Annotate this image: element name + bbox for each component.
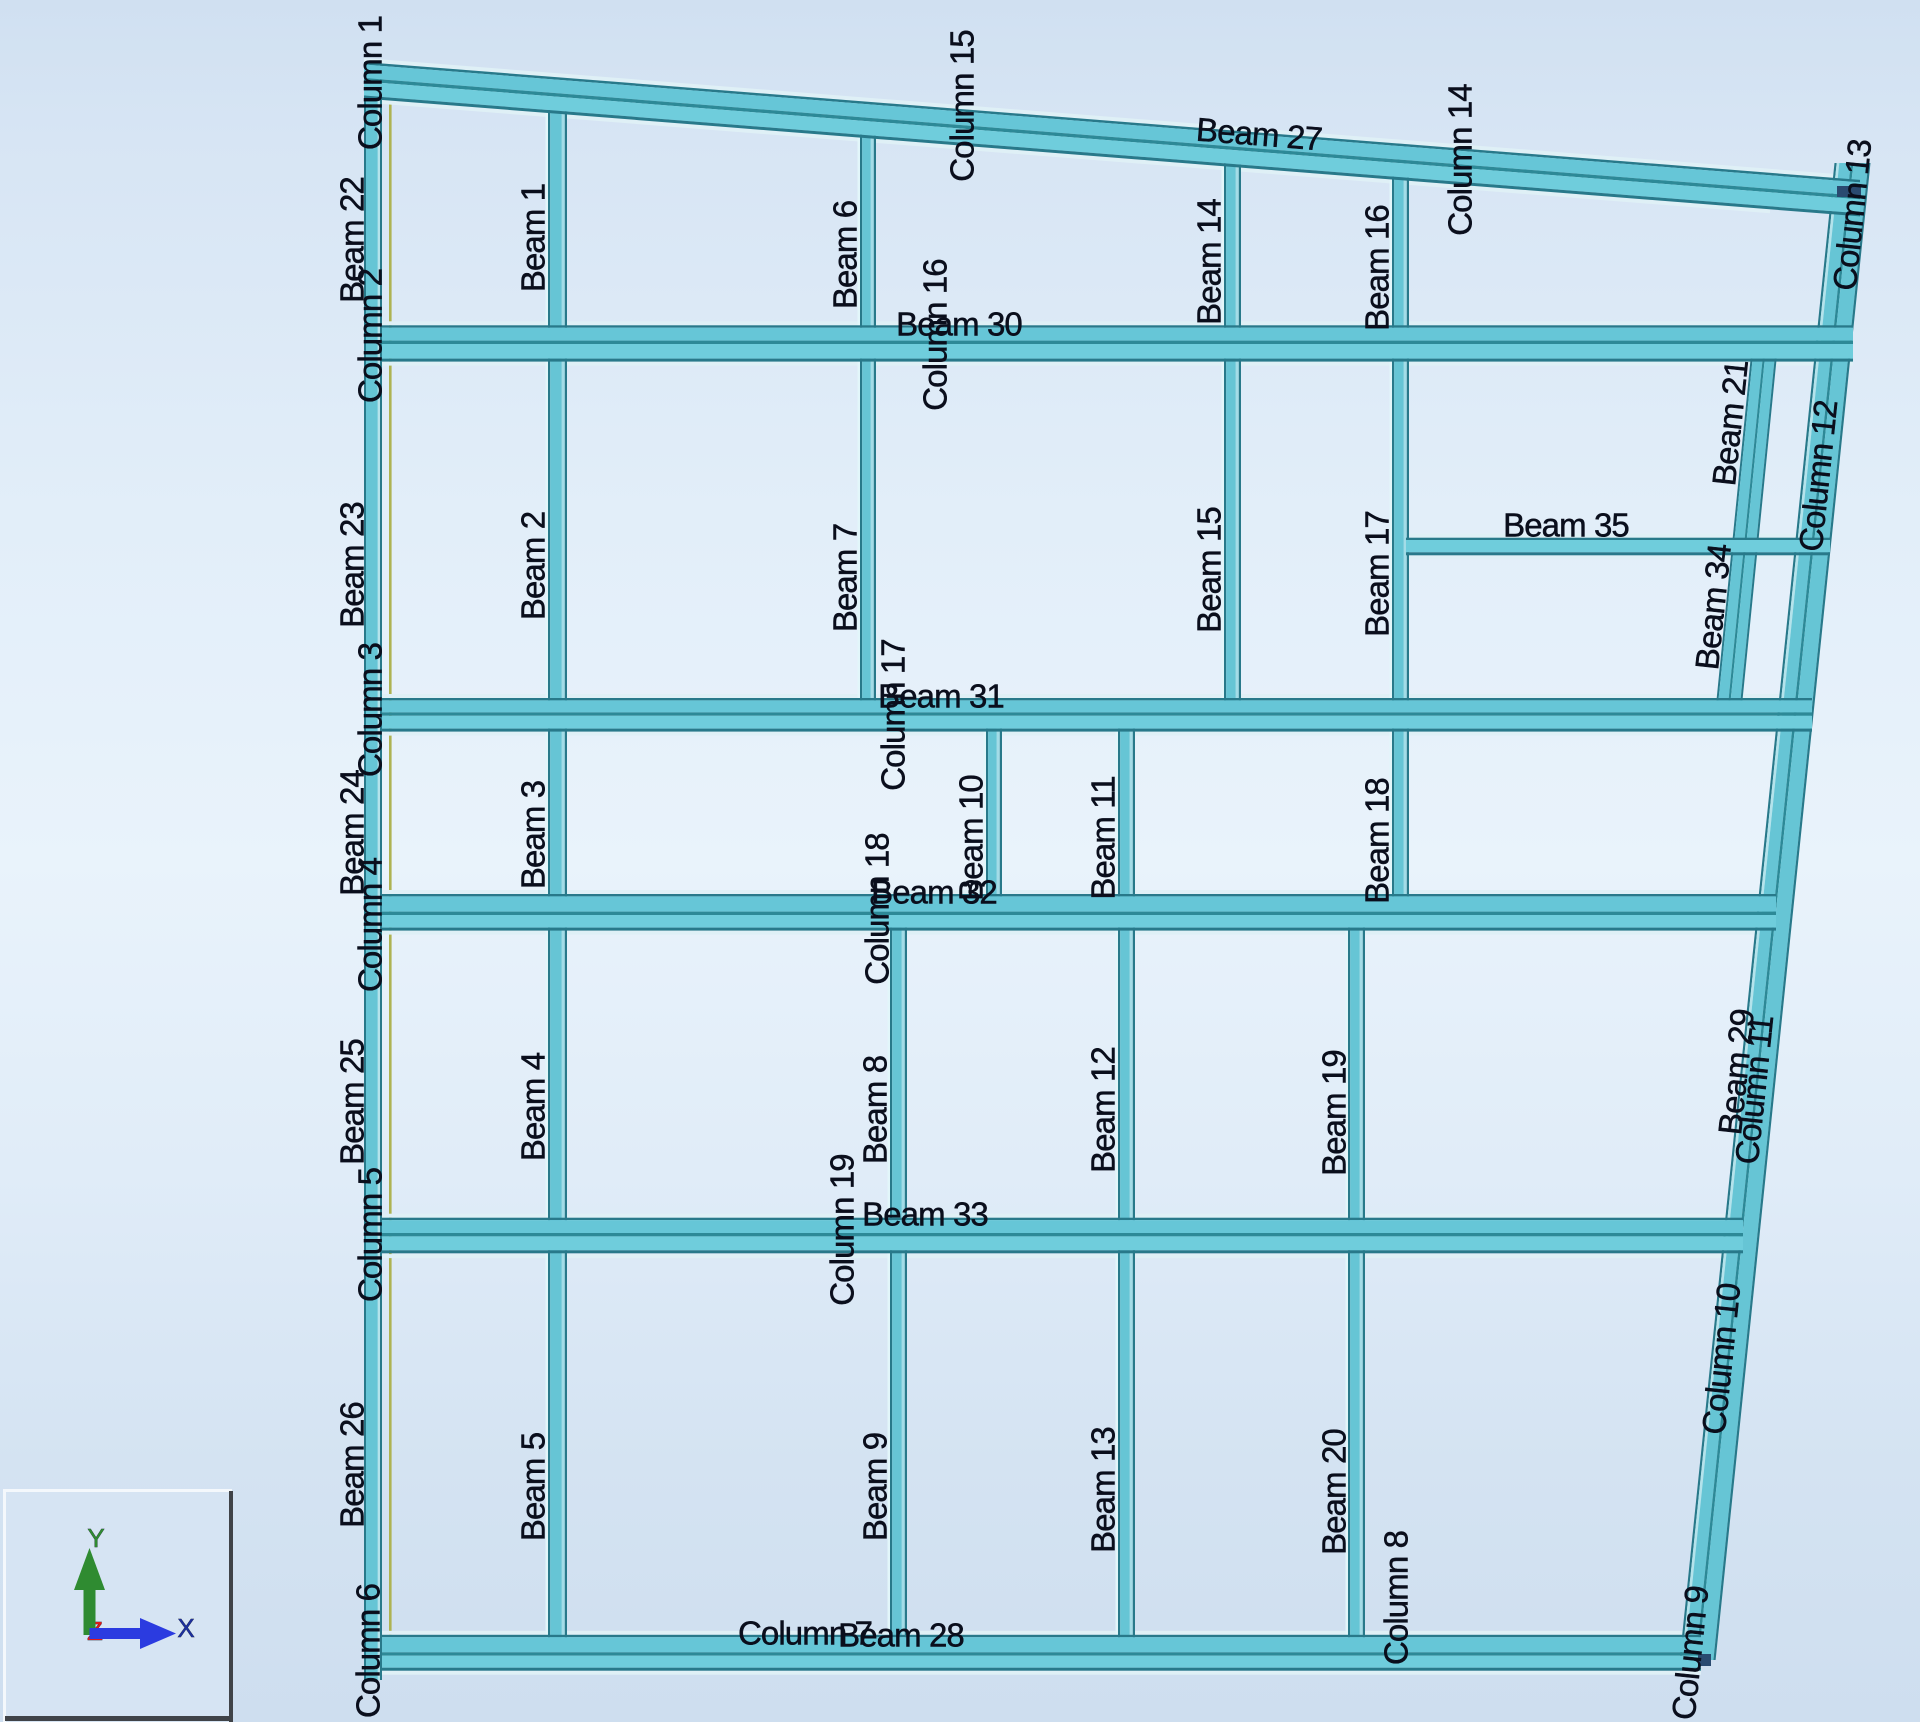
svg-text:Beam 2: Beam 2 [515, 512, 552, 620]
svg-text:Column 8: Column 8 [1378, 1531, 1415, 1665]
svg-text:Beam 25: Beam 25 [334, 1039, 371, 1165]
svg-text:Y: Y [87, 1523, 104, 1553]
svg-text:Column 4: Column 4 [352, 857, 389, 992]
svg-text:Beam 5: Beam 5 [515, 1433, 552, 1541]
svg-text:Beam 9: Beam 9 [857, 1433, 894, 1541]
svg-text:Beam 7: Beam 7 [827, 524, 864, 632]
svg-text:Column 19: Column 19 [824, 1154, 861, 1306]
svg-text:Beam 32: Beam 32 [871, 874, 997, 911]
svg-text:Column 6: Column 6 [350, 1584, 387, 1718]
svg-text:X: X [177, 1613, 194, 1643]
svg-text:Beam 31: Beam 31 [878, 678, 1004, 715]
svg-text:Beam 19: Beam 19 [1316, 1050, 1353, 1176]
svg-text:Column 7: Column 7 [738, 1615, 872, 1652]
svg-text:Column 5: Column 5 [352, 1168, 389, 1302]
svg-text:Beam 23: Beam 23 [334, 502, 371, 628]
svg-text:Beam 15: Beam 15 [1191, 507, 1228, 633]
svg-text:Beam 12: Beam 12 [1085, 1047, 1122, 1173]
svg-text:Beam 1: Beam 1 [515, 184, 552, 292]
svg-text:Beam 11: Beam 11 [1085, 776, 1122, 899]
svg-text:Column 3: Column 3 [352, 643, 389, 777]
svg-text:Beam 18: Beam 18 [1359, 778, 1396, 904]
svg-text:Beam 16: Beam 16 [1359, 205, 1396, 331]
svg-text:Column 14: Column 14 [1442, 84, 1479, 236]
svg-text:Column 15: Column 15 [944, 30, 981, 182]
svg-text:Beam 13: Beam 13 [1085, 1427, 1122, 1553]
svg-text:Column 2: Column 2 [352, 269, 389, 403]
svg-text:Beam 17: Beam 17 [1359, 511, 1396, 637]
svg-text:Beam 26: Beam 26 [334, 1402, 371, 1528]
svg-text:Column 17: Column 17 [875, 639, 912, 791]
svg-text:Beam 20: Beam 20 [1316, 1429, 1353, 1555]
svg-text:Beam 3: Beam 3 [515, 781, 552, 889]
svg-text:Beam 4: Beam 4 [515, 1052, 552, 1161]
svg-text:Beam 35: Beam 35 [1503, 507, 1629, 544]
svg-text:Beam 33: Beam 33 [862, 1196, 988, 1233]
svg-text:Beam 8: Beam 8 [857, 1056, 894, 1164]
svg-text:Column 1: Column 1 [352, 16, 389, 150]
svg-text:Beam 30: Beam 30 [896, 306, 1022, 343]
svg-text:Beam 6: Beam 6 [827, 201, 864, 309]
svg-text:Beam 14: Beam 14 [1191, 199, 1228, 325]
